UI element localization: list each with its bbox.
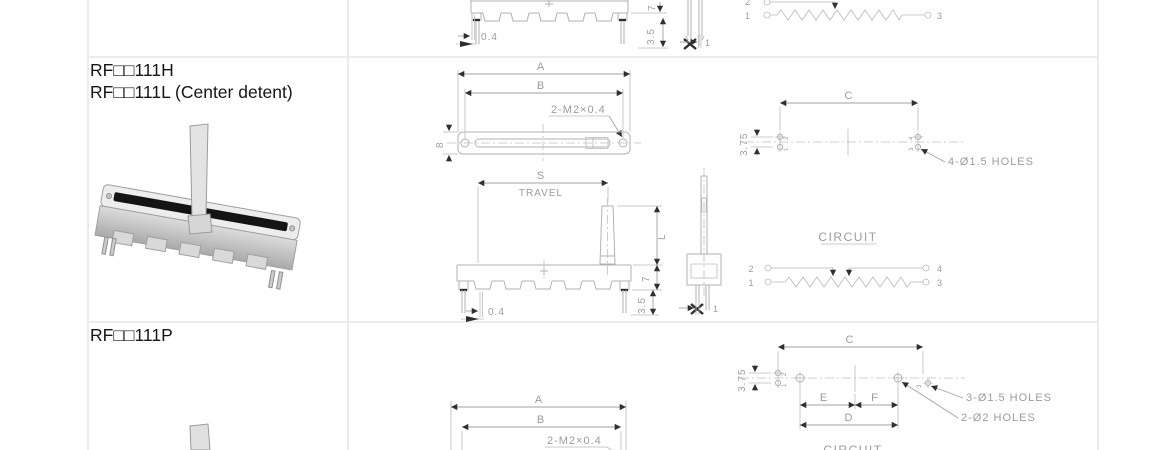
prev-row-circuit-fragment: 2 1 3 (730, 0, 970, 30)
product-title-rf111p: RF□□111P (90, 324, 173, 346)
circuit-terminal-3: 3 (937, 278, 943, 288)
datasheet-page: 0.4 7 3.5 1 2 1 3 RF□□111H RF□□111L (Cen… (0, 0, 1150, 450)
dim-3.5: 3.5 (637, 297, 648, 314)
prev-circuit-terminal-3: 3 (937, 11, 943, 21)
dim-b: B (537, 80, 545, 92)
hole-pin-3: 3 (909, 147, 915, 151)
rf111hl-hole-layout-drawing: C 2 1 4 3 3.75 4-Ø1.5 HOLES (735, 85, 1055, 173)
dim-d: D (845, 412, 854, 424)
holes-callout-big: 2-Ø2 HOLES (961, 412, 1036, 424)
thread-callout: 2-M2×0.4 (551, 104, 606, 116)
hole-pin-1: 1 (782, 383, 788, 387)
dim-a: A (535, 394, 543, 406)
dim-f: F (871, 392, 879, 404)
rf111p-hole-layout-drawing: C 2 1 3 3.75 E F D 3-Ø1.5 HOLES 2-Ø2 HOL… (720, 330, 1055, 450)
dim-0.4: 0.4 (488, 307, 505, 318)
rf111p-top-view-drawing-partial: A B 2-M2×0.4 (435, 395, 675, 450)
title-line-1: RF□□111P (90, 324, 173, 346)
dim-3.75: 3.75 (737, 369, 748, 392)
prev-circuit-terminal-2: 2 (745, 0, 751, 7)
dim-c: C (845, 90, 854, 102)
title-line-1: RF□□111H (90, 59, 293, 81)
prev-dim-0.4: 0.4 (481, 32, 498, 43)
prev-row-front-view-fragment: 0.4 7 3.5 (448, 0, 673, 57)
prev-dim-3.5: 3.5 (646, 28, 657, 45)
prev-dim-1: 1 (705, 38, 711, 48)
dim-e: E (820, 392, 828, 404)
holes-callout: 4-Ø1.5 HOLES (948, 156, 1034, 168)
side-dim-1: 1 (713, 304, 719, 314)
product-title-rf111hl: RF□□111H RF□□111L (Center detent) (90, 59, 293, 103)
dim-l: L (657, 233, 668, 240)
prev-circuit-terminal-1: 1 (745, 11, 751, 21)
rf111hl-circuit-diagram: CIRCUIT 2 1 4 3 (740, 222, 970, 298)
rf111hl-top-view-drawing: A B 2-M2×0.4 8 (435, 60, 670, 168)
hole-pin-1: 1 (784, 147, 790, 151)
dim-b: B (537, 414, 545, 426)
product-photo-rf111hl (98, 120, 338, 312)
circuit-title-partial: CIRCUIT (823, 443, 882, 450)
travel-label: TRAVEL (519, 188, 563, 199)
table-border-left (87, 0, 89, 450)
dim-s: S (537, 170, 545, 182)
circuit-terminal-2: 2 (748, 264, 754, 274)
title-line-2: RF□□111L (Center detent) (90, 81, 293, 103)
thread-callout: 2-M2×0.4 (547, 435, 602, 447)
holes-callout-small: 3-Ø1.5 HOLES (966, 392, 1052, 404)
dim-c: C (846, 334, 855, 346)
dim-8: 8 (435, 141, 446, 148)
dim-a: A (537, 61, 545, 73)
dim-7: 7 (641, 275, 652, 282)
rf111hl-front-side-view-drawing: S TRAVEL L 7 3.5 0.4 (435, 168, 735, 322)
circuit-title: CIRCUIT (818, 230, 877, 244)
circuit-terminal-4: 4 (937, 264, 943, 274)
prev-dim-7: 7 (647, 4, 658, 11)
prev-row-side-view-fragment: 1 (672, 0, 730, 57)
table-border-middle (347, 0, 349, 450)
table-border-right (1097, 0, 1099, 450)
product-photo-rf111p-partial (185, 424, 225, 450)
hole-pin-3: 3 (917, 384, 923, 388)
dim-3.75: 3.75 (739, 133, 750, 156)
circuit-terminal-1: 1 (748, 278, 754, 288)
